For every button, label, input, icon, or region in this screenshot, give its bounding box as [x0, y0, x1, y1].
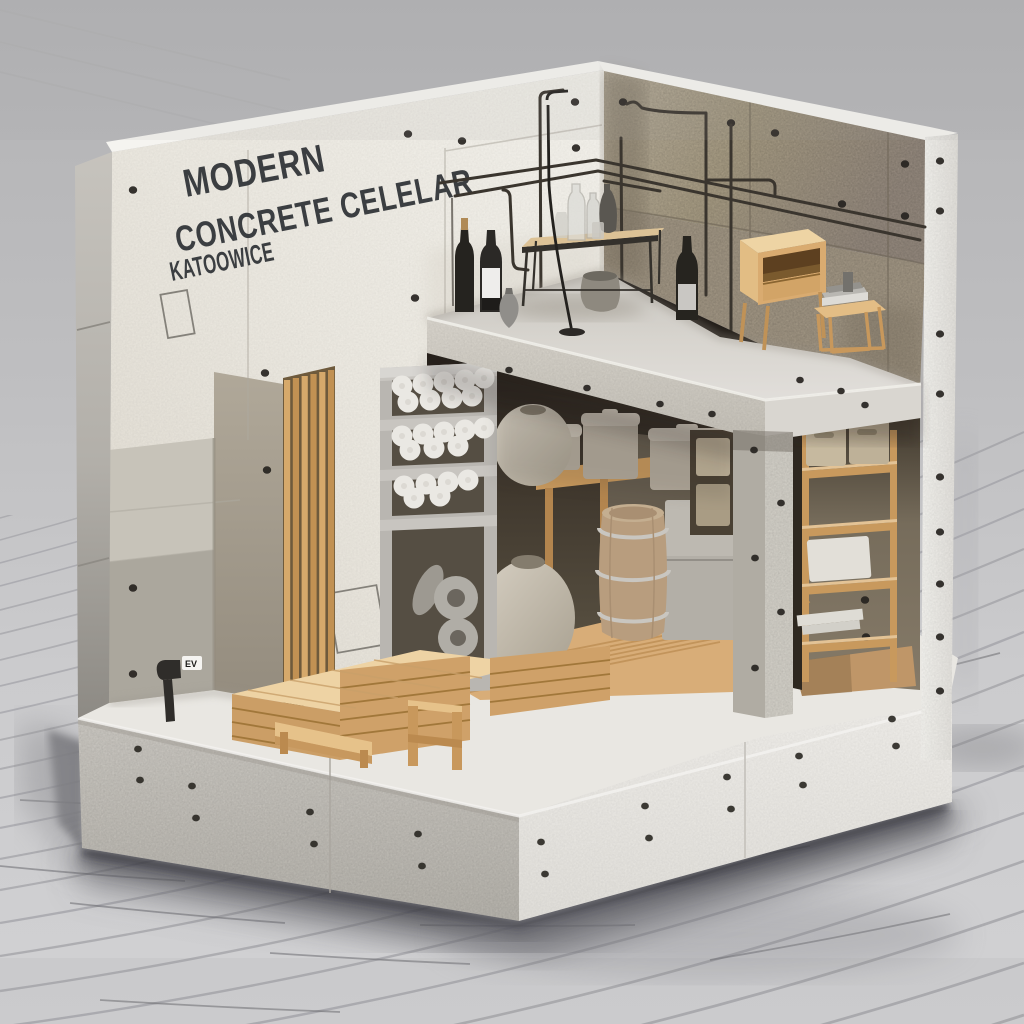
svg-text:EV: EV [185, 659, 197, 669]
